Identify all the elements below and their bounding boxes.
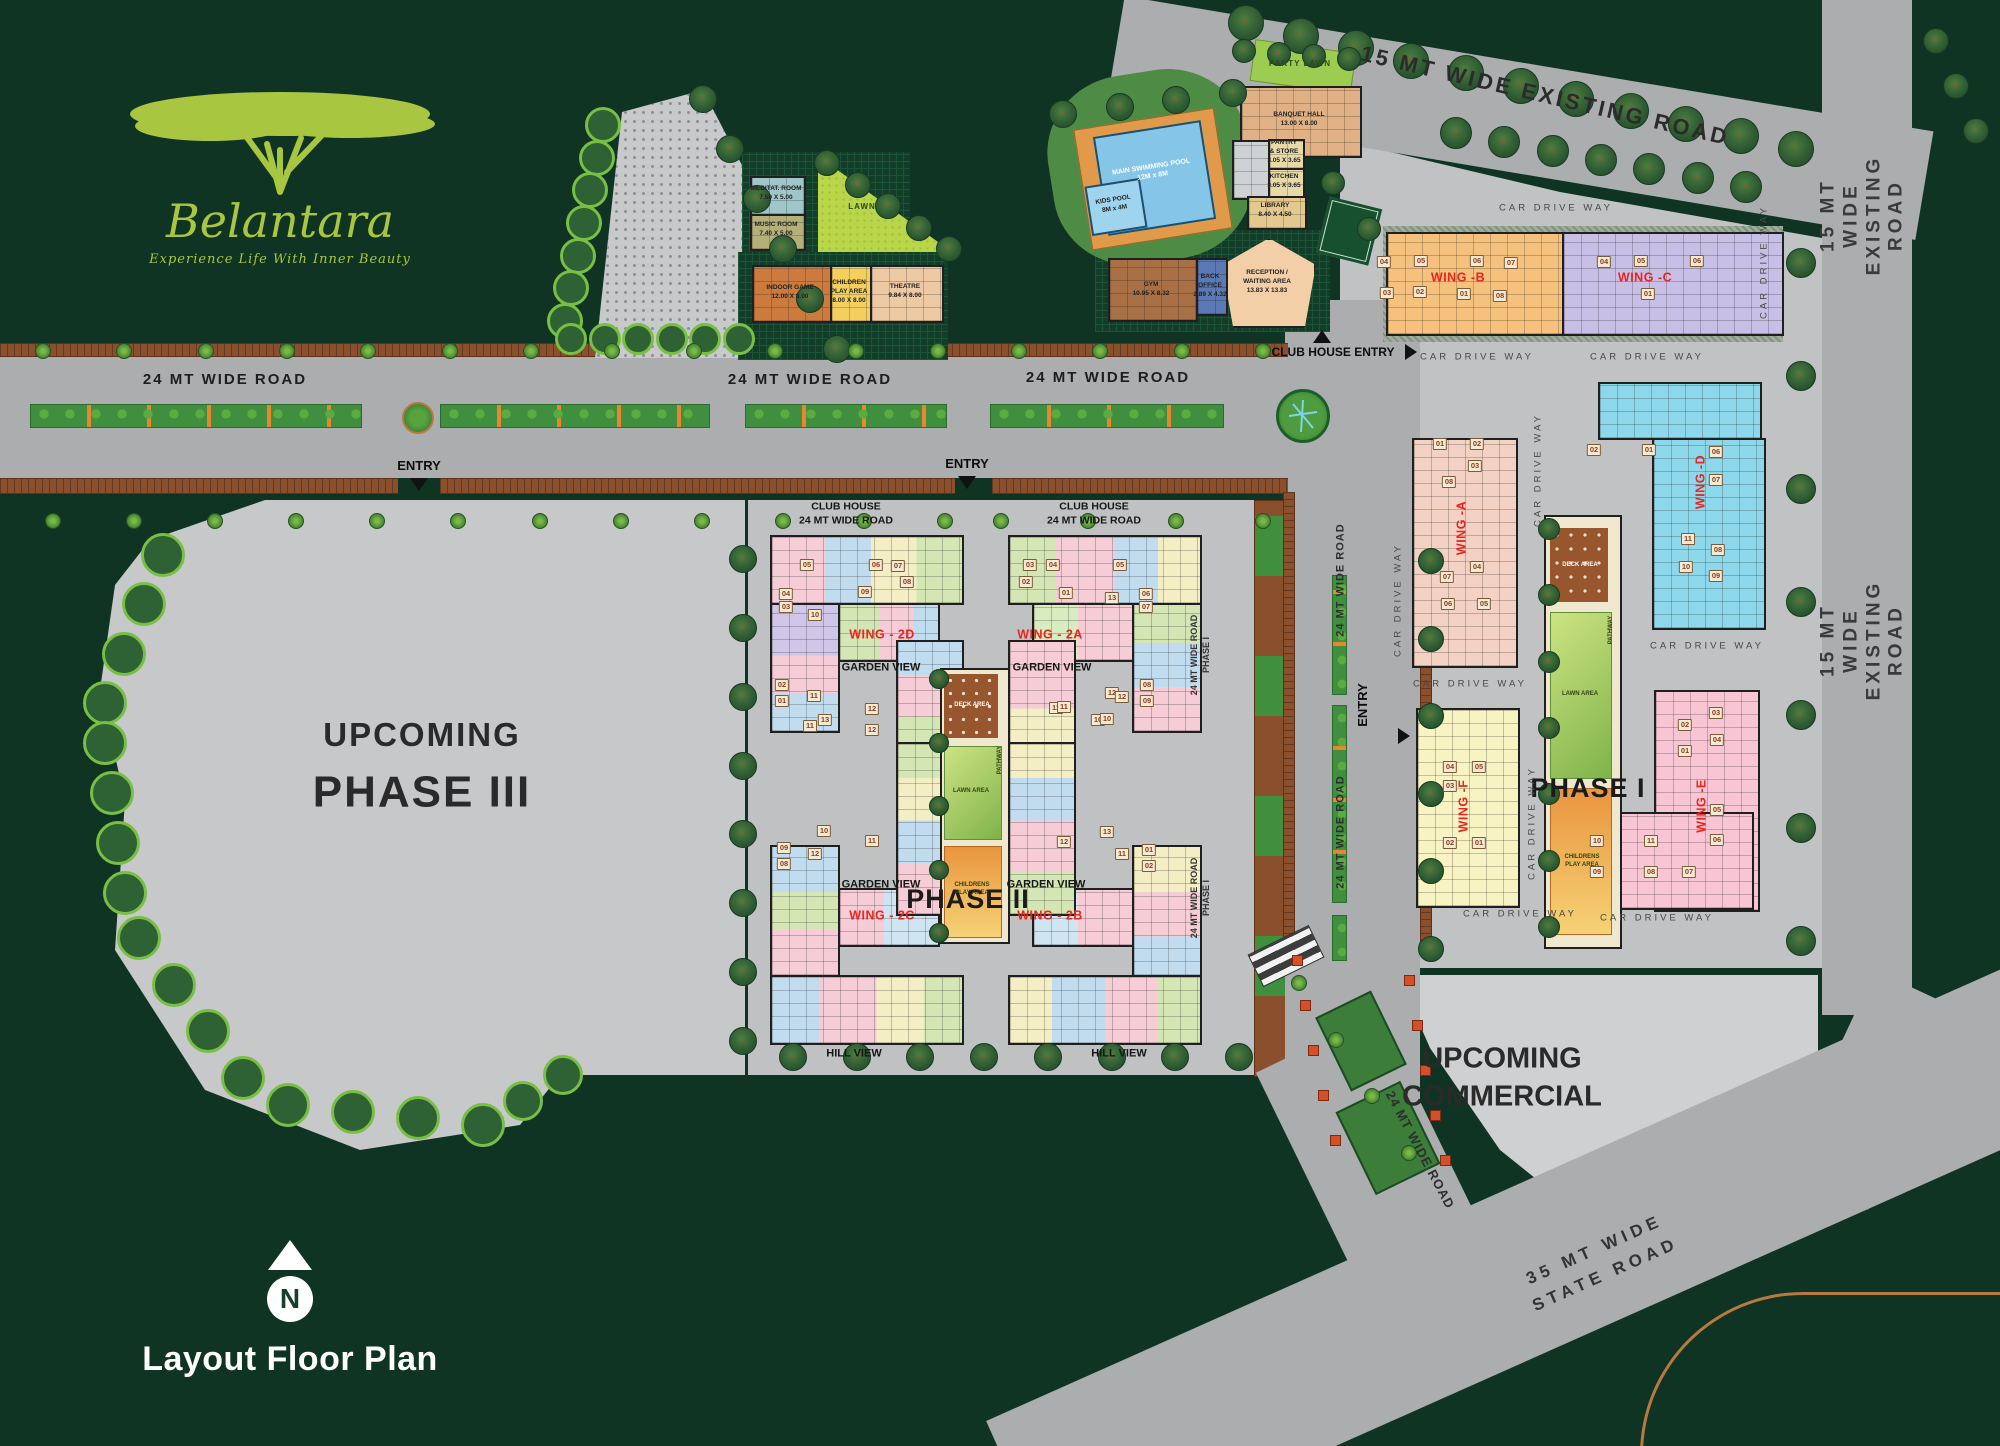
tree-icon	[1011, 343, 1027, 359]
belantara-logo: Belantara Experience Life With Inner Bea…	[100, 80, 460, 290]
unit-number-chip: 05	[1634, 255, 1648, 267]
unit-number-chip: 13	[1105, 592, 1119, 604]
unit-number-chip: 01	[1142, 844, 1156, 856]
tree-icon	[1537, 135, 1569, 167]
unit-number-chip: 10	[1100, 713, 1114, 725]
unit-number-chip: 12	[808, 848, 822, 860]
road-24mt-1: 24 MT WIDE ROAD	[143, 371, 307, 389]
tree-icon	[729, 958, 757, 986]
tree-icon	[461, 1103, 505, 1147]
unit-number-chip: 08	[1493, 290, 1507, 302]
tree-icon	[1440, 117, 1472, 149]
wing-a-label: WING -A	[1455, 501, 1470, 555]
room-banquet: BANQUET HALL 13.00 X 8.00	[1273, 111, 1324, 129]
tree-icon	[1730, 171, 1762, 203]
tree-icon	[779, 1043, 807, 1071]
tree-icon	[613, 513, 629, 529]
unit-number-chip: 12	[1057, 836, 1071, 848]
unit-number-chip: 02	[1678, 719, 1692, 731]
tree-icon	[729, 545, 757, 573]
wing-f-label: WING -F	[1457, 780, 1472, 833]
unit-number-chip: 10	[1679, 561, 1693, 573]
tree-icon	[1228, 5, 1264, 41]
tree-icon	[45, 513, 61, 529]
unit-number-chip: 05	[1113, 559, 1127, 571]
unit-number-chip: 06	[1690, 255, 1704, 267]
wing-d-building-north	[1598, 382, 1762, 440]
car-drive-way-10: CAR DRIVE WAY	[1600, 912, 1714, 923]
wing-2c-building	[770, 975, 964, 1045]
lawn-label: LAWN	[848, 202, 876, 212]
unit-number-chip: 03	[1468, 460, 1482, 472]
unit-number-chip: 04	[1046, 559, 1060, 571]
tree-icon	[767, 343, 783, 359]
planter-box	[1330, 1135, 1341, 1146]
tree-icon	[560, 238, 596, 274]
unit-number-chip: 09	[1140, 695, 1154, 707]
tree-icon	[1786, 700, 1816, 730]
unit-number-chip: 01	[775, 695, 789, 707]
layout-floor-plan-map: Belantara Experience Life With Inner Bea…	[0, 0, 2000, 1446]
tree-icon	[929, 669, 949, 689]
road-15mt-vertical-2: 15 MT WIDE EXISTING ROAD	[1817, 572, 1908, 709]
unit-number-chip: 02	[1443, 837, 1457, 849]
tree-icon	[993, 513, 1009, 529]
road-24mt-vertical-1: 24 MT WIDE ROAD	[1334, 523, 1347, 636]
unit-number-chip: 06	[1441, 598, 1455, 610]
unit-number-chip: 06	[1139, 588, 1153, 600]
unit-number-chip: 04	[779, 588, 793, 600]
party-lawn-label: PARTY LAWN	[1269, 59, 1331, 69]
room-reception: RECEPTION / WAITING AREA 13.83 X 13.83	[1243, 269, 1291, 295]
unit-number-chip: 05	[1472, 761, 1486, 773]
unit-number-chip: 10	[1590, 835, 1604, 847]
tree-icon	[1538, 717, 1560, 739]
wing-d-label: WING -D	[1694, 455, 1709, 509]
unit-number-chip: 08	[1711, 544, 1725, 556]
tree-icon	[937, 513, 953, 529]
wing-b-label: WING -B	[1431, 271, 1485, 286]
tree-icon	[1255, 513, 1271, 529]
tree-icon	[1357, 217, 1381, 241]
entry-arrow-3	[1398, 728, 1410, 744]
unit-number-chip: 04	[1710, 734, 1724, 746]
entry-label-2: ENTRY	[945, 456, 989, 472]
road-median-1	[30, 404, 362, 428]
unit-number-chip: 11	[807, 690, 821, 702]
tree-icon	[1049, 100, 1077, 128]
room-gym: GYM 10.95 X 8.32	[1133, 281, 1170, 299]
tree-icon	[1219, 79, 1247, 107]
road-15mt-vertical-1: 15 MT WIDE EXISTING ROAD	[1817, 147, 1908, 284]
unit-number-chip: 02	[1019, 576, 1033, 588]
planter-box	[1404, 975, 1415, 986]
tree-icon	[117, 916, 161, 960]
unit-number-chip: 06	[1709, 446, 1723, 458]
tree-icon	[1778, 131, 1814, 167]
road-median-3	[745, 404, 947, 428]
tree-icon	[723, 323, 755, 355]
entry-label-3: ENTRY	[1355, 683, 1371, 727]
tree-icon	[83, 721, 127, 765]
tree-icon	[122, 582, 166, 626]
phase-1-label: PHASE I	[1530, 772, 1645, 804]
unit-number-chip: 07	[891, 560, 905, 572]
upcoming-phase3-line1: UPCOMING	[323, 715, 521, 755]
tree-icon	[83, 681, 127, 725]
unit-number-chip: 05	[800, 559, 814, 571]
room-music: MUSIC ROOM 7.40 X 5.00	[755, 221, 798, 239]
unit-number-chip: 11	[865, 835, 879, 847]
unit-number-chip: 05	[1710, 804, 1724, 816]
tree-icon	[814, 150, 840, 176]
unit-number-chip: 08	[1644, 866, 1658, 878]
unit-number-chip: 12	[865, 724, 879, 736]
unit-number-chip: 01	[1059, 587, 1073, 599]
room-kitchen: KITCHEN 3.05 X 3.65	[1267, 173, 1300, 191]
tree-icon	[1168, 513, 1184, 529]
road-median-4	[990, 404, 1224, 428]
tree-icon	[1337, 47, 1361, 71]
planter-box	[1412, 1020, 1423, 1031]
unit-number-chip: 01	[1433, 438, 1447, 450]
road-24mt-2: 24 MT WIDE ROAD	[728, 371, 892, 389]
tree-icon	[1786, 813, 1816, 843]
locker-block	[1232, 140, 1270, 200]
tree-icon	[1786, 248, 1816, 278]
club-house-entry-label: CLUB HOUSE ENTRY	[1272, 345, 1395, 359]
tree-icon	[656, 323, 688, 355]
unit-number-chip: 02	[1587, 444, 1601, 456]
upcoming-commercial: UPCOMING COMMERCIAL	[1402, 1040, 1602, 1115]
unit-number-chip: 06	[1470, 255, 1484, 267]
tree-icon	[572, 172, 608, 208]
garden-view-2: GARDEN VIEW	[1013, 661, 1092, 674]
tree-icon	[266, 1083, 310, 1127]
car-drive-way-8: CAR DRIVE WAY	[1526, 766, 1537, 880]
unit-number-chip: 03	[1380, 287, 1394, 299]
unit-number-chip: 01	[1472, 837, 1486, 849]
road-24mt-3: 24 MT WIDE ROAD	[1026, 369, 1190, 387]
unit-number-chip: 01	[1642, 444, 1656, 456]
wing-2a-label: WING - 2A	[1017, 628, 1083, 643]
room-back-office: BACK OFFICE 2.89 X 4.32	[1193, 273, 1226, 299]
unit-number-chip: 13	[1100, 826, 1114, 838]
roundabout	[1276, 389, 1330, 443]
tree-icon	[1106, 93, 1134, 121]
play-area-p1: CHILDRENS PLAY AREA	[1564, 854, 1599, 870]
tree-icon	[1923, 28, 1949, 54]
lawn-area-p1: LAWN AREA	[1562, 691, 1598, 699]
planter-box	[1308, 1045, 1319, 1056]
bottom-right-green-corner	[1640, 1292, 2000, 1446]
title-block: N Layout Floor Plan	[110, 1240, 470, 1379]
tree-icon	[845, 172, 871, 198]
tree-icon	[566, 205, 602, 241]
unit-number-chip: 07	[1440, 571, 1454, 583]
unit-number-chip: 02	[775, 679, 789, 691]
tree-icon	[555, 323, 587, 355]
tree-icon	[929, 860, 949, 880]
roundabout-art	[1279, 392, 1327, 440]
unit-number-chip: 04	[1470, 561, 1484, 573]
unit-number-chip: 05	[1477, 598, 1491, 610]
median-planter-circle	[402, 402, 434, 434]
tree-icon	[1328, 1032, 1344, 1048]
tree-icon	[103, 871, 147, 915]
car-drive-way-4: CAR DRIVE WAY	[1392, 543, 1403, 657]
planter-box	[1292, 955, 1303, 966]
footpath-vroad-left	[1283, 492, 1295, 955]
page-title: Layout Floor Plan	[110, 1340, 470, 1379]
pathway-p1: PATHWAY	[1608, 616, 1616, 645]
hill-view-2: HILL VIEW	[1091, 1047, 1146, 1060]
unit-number-chip: 01	[1641, 288, 1655, 300]
tree-icon	[152, 963, 196, 1007]
tree-icon	[102, 632, 146, 676]
deck-area-p1: DECK AREA	[1562, 562, 1597, 570]
logo-tagline: Experience Life With Inner Beauty	[100, 252, 460, 267]
tree-icon	[279, 343, 295, 359]
car-drive-way-11: CAR DRIVE WAY	[1758, 205, 1769, 319]
tree-icon	[823, 335, 851, 363]
car-drive-way-6: CAR DRIVE WAY	[1413, 678, 1527, 689]
tree-icon	[35, 343, 51, 359]
wing-2b-building	[1008, 975, 1202, 1045]
entry-arrow-1	[410, 478, 428, 491]
tree-icon	[1538, 651, 1560, 673]
vroad-median-3	[1332, 915, 1347, 961]
garden-view-1: GARDEN VIEW	[842, 661, 921, 674]
room-meditation: MEDITAT. ROOM 7.50 X 5.00	[750, 185, 801, 203]
tree-icon	[729, 752, 757, 780]
wing-d-building	[1652, 438, 1766, 630]
tree-icon	[729, 614, 757, 642]
club-house-road-1: CLUB HOUSE 24 MT WIDE ROAD	[799, 500, 893, 527]
deck-area-p2: DECK AREA	[954, 702, 989, 710]
tree-icon	[1418, 936, 1444, 962]
unit-number-chip: 07	[1709, 474, 1723, 486]
tree-icon	[936, 236, 962, 262]
tree-icon	[729, 683, 757, 711]
tree-icon	[1174, 343, 1190, 359]
unit-number-chip: 13	[818, 714, 832, 726]
tree-icon	[1786, 474, 1816, 504]
car-drive-way-2: CAR DRIVE WAY	[1420, 351, 1534, 362]
room-library: LIBRARY 8.40 X 4.50	[1258, 202, 1291, 220]
hill-view-1: HILL VIEW	[826, 1047, 881, 1060]
wing-e-label: WING -E	[1695, 779, 1710, 833]
tree-icon	[1418, 626, 1444, 652]
tree-icon	[585, 107, 621, 143]
unit-number-chip: 03	[1709, 707, 1723, 719]
club-house-entry-arrow-up	[1313, 330, 1331, 343]
unit-number-chip: 09	[858, 586, 872, 598]
road-median-2	[440, 404, 710, 428]
tree-icon	[126, 513, 142, 529]
acacia-tree-icon	[115, 80, 445, 195]
car-drive-way-7: CAR DRIVE WAY	[1650, 640, 1764, 651]
unit-number-chip: 07	[1139, 601, 1153, 613]
unit-number-chip: 02	[1470, 438, 1484, 450]
road-phase1-vertical-1: 24 MT WIDE ROAD PHASE I	[1188, 615, 1212, 696]
planter-box	[1318, 1090, 1329, 1101]
tree-icon	[1963, 118, 1989, 144]
footpath-bottom-1	[0, 478, 398, 494]
entry-label-1: ENTRY	[397, 458, 441, 474]
unit-number-chip: 06	[1710, 834, 1724, 846]
tree-icon	[1418, 781, 1444, 807]
room-pantry: PANTRY & STORE 3.05 X 3.65	[1267, 139, 1300, 165]
logo-name: Belantara	[100, 194, 460, 248]
room-indoor-game: INDOOR GAME 12.00 X 8.00	[766, 284, 813, 302]
tree-icon	[875, 193, 901, 219]
club-house-entry-arrow-right	[1405, 344, 1417, 360]
tree-icon	[141, 533, 185, 577]
tree-icon	[929, 923, 949, 943]
unit-number-chip: 04	[1377, 256, 1391, 268]
pathway-p2: PATHWAY	[997, 746, 1005, 775]
tree-icon	[686, 343, 702, 359]
unit-number-chip: 11	[803, 720, 817, 732]
tree-icon	[729, 1027, 757, 1055]
unit-number-chip: 11	[1115, 848, 1129, 860]
unit-number-chip: 01	[1457, 288, 1471, 300]
tree-icon	[716, 135, 744, 163]
tree-icon	[198, 343, 214, 359]
unit-number-chip: 11	[1681, 533, 1695, 545]
tree-icon	[442, 343, 458, 359]
tree-icon	[1321, 171, 1345, 195]
tree-icon	[929, 796, 949, 816]
tree-icon	[1585, 144, 1617, 176]
tree-icon	[1225, 1043, 1253, 1071]
unit-number-chip: 08	[1140, 679, 1154, 691]
tree-icon	[221, 1056, 265, 1100]
unit-number-chip: 03	[1443, 780, 1457, 792]
unit-number-chip: 02	[1413, 286, 1427, 298]
wing-2c-label: WING - 2C	[849, 909, 915, 924]
footpath-bottom-2	[440, 478, 955, 494]
tree-icon	[689, 85, 717, 113]
unit-number-chip: 07	[1504, 257, 1518, 269]
tree-icon	[396, 1096, 440, 1140]
unit-number-chip: 09	[777, 842, 791, 854]
unit-number-chip: 01	[1678, 745, 1692, 757]
tree-icon	[1538, 850, 1560, 872]
tree-icon	[579, 140, 615, 176]
tree-icon	[1786, 361, 1816, 391]
car-drive-way-9: CAR DRIVE WAY	[1463, 908, 1577, 919]
wing-2d-label: WING - 2D	[849, 628, 915, 643]
tree-icon	[1232, 39, 1256, 63]
unit-number-chip: 08	[900, 576, 914, 588]
unit-number-chip: 12	[1115, 691, 1129, 703]
unit-number-chip: 11	[1057, 701, 1071, 713]
tree-icon	[930, 343, 946, 359]
tree-icon	[1034, 1043, 1062, 1071]
tree-icon	[929, 733, 949, 753]
compass-north: N	[267, 1276, 313, 1322]
tree-icon	[331, 1090, 375, 1134]
wing-c-building	[1562, 232, 1784, 336]
tree-icon	[622, 323, 654, 355]
unit-number-chip: 10	[817, 825, 831, 837]
tree-icon	[1255, 343, 1271, 359]
unit-number-chip: 04	[1443, 761, 1457, 773]
unit-number-chip: 09	[1709, 570, 1723, 582]
tree-icon	[1786, 587, 1816, 617]
tree-icon	[1418, 703, 1444, 729]
planter-box	[1300, 1000, 1311, 1011]
phase2-east-footpath	[1254, 500, 1286, 1077]
tree-icon	[532, 513, 548, 529]
tree-icon	[503, 1081, 543, 1121]
unit-number-chip: 06	[869, 559, 883, 571]
tree-icon	[694, 513, 710, 529]
planter-box	[1440, 1155, 1451, 1166]
road-phase1-vertical-2: 24 MT WIDE ROAD PHASE I	[1188, 858, 1212, 939]
unit-number-chip: 07	[1682, 866, 1696, 878]
unit-number-chip: 10	[808, 609, 822, 621]
tree-icon	[90, 771, 134, 815]
tree-icon	[1943, 73, 1969, 99]
entry-arrow-2	[958, 476, 976, 489]
unit-number-chip: 12	[865, 703, 879, 715]
car-drive-way-1: CAR DRIVE WAY	[1499, 202, 1613, 213]
unit-number-chip: 04	[1597, 256, 1611, 268]
tree-icon	[970, 1043, 998, 1071]
play-area-p2: CHILDRENS PLAY AREA	[954, 882, 989, 898]
room-children-play: CHILDREN PLAY AREA 8.00 X 8.00	[831, 279, 868, 305]
tree-icon	[96, 821, 140, 865]
club-house-road-2: CLUB HOUSE 24 MT WIDE ROAD	[1047, 500, 1141, 527]
unit-number-chip: 02	[1142, 860, 1156, 872]
tree-icon	[1682, 162, 1714, 194]
car-drive-way-3: CAR DRIVE WAY	[1590, 351, 1704, 362]
wing-c-label: WING -C	[1618, 271, 1672, 286]
tree-icon	[775, 513, 791, 529]
upcoming-phase3-line2: PHASE III	[313, 767, 532, 820]
unit-number-chip: 03	[1023, 559, 1037, 571]
unit-number-chip: 08	[1442, 476, 1456, 488]
north-arrow-icon	[268, 1240, 312, 1270]
tree-icon	[1786, 926, 1816, 956]
tree-icon	[543, 1055, 583, 1095]
unit-number-chip: 05	[1414, 255, 1428, 267]
footpath-bottom-3	[992, 478, 1288, 494]
unit-number-chip: 08	[777, 858, 791, 870]
tree-icon	[1291, 975, 1307, 991]
tree-icon	[523, 343, 539, 359]
tree-icon	[553, 270, 589, 306]
room-theatre: THEATRE 9.84 X 8.00	[888, 283, 921, 301]
road-24mt-vertical-2: 24 MT WIDE ROAD	[1334, 775, 1347, 888]
lawn-area-p2: LAWN AREA	[953, 788, 989, 796]
unit-number-chip: 03	[779, 601, 793, 613]
tree-icon	[906, 215, 932, 241]
unit-number-chip: 11	[1644, 835, 1658, 847]
car-drive-way-5: CAR DRIVE WAY	[1532, 413, 1543, 527]
